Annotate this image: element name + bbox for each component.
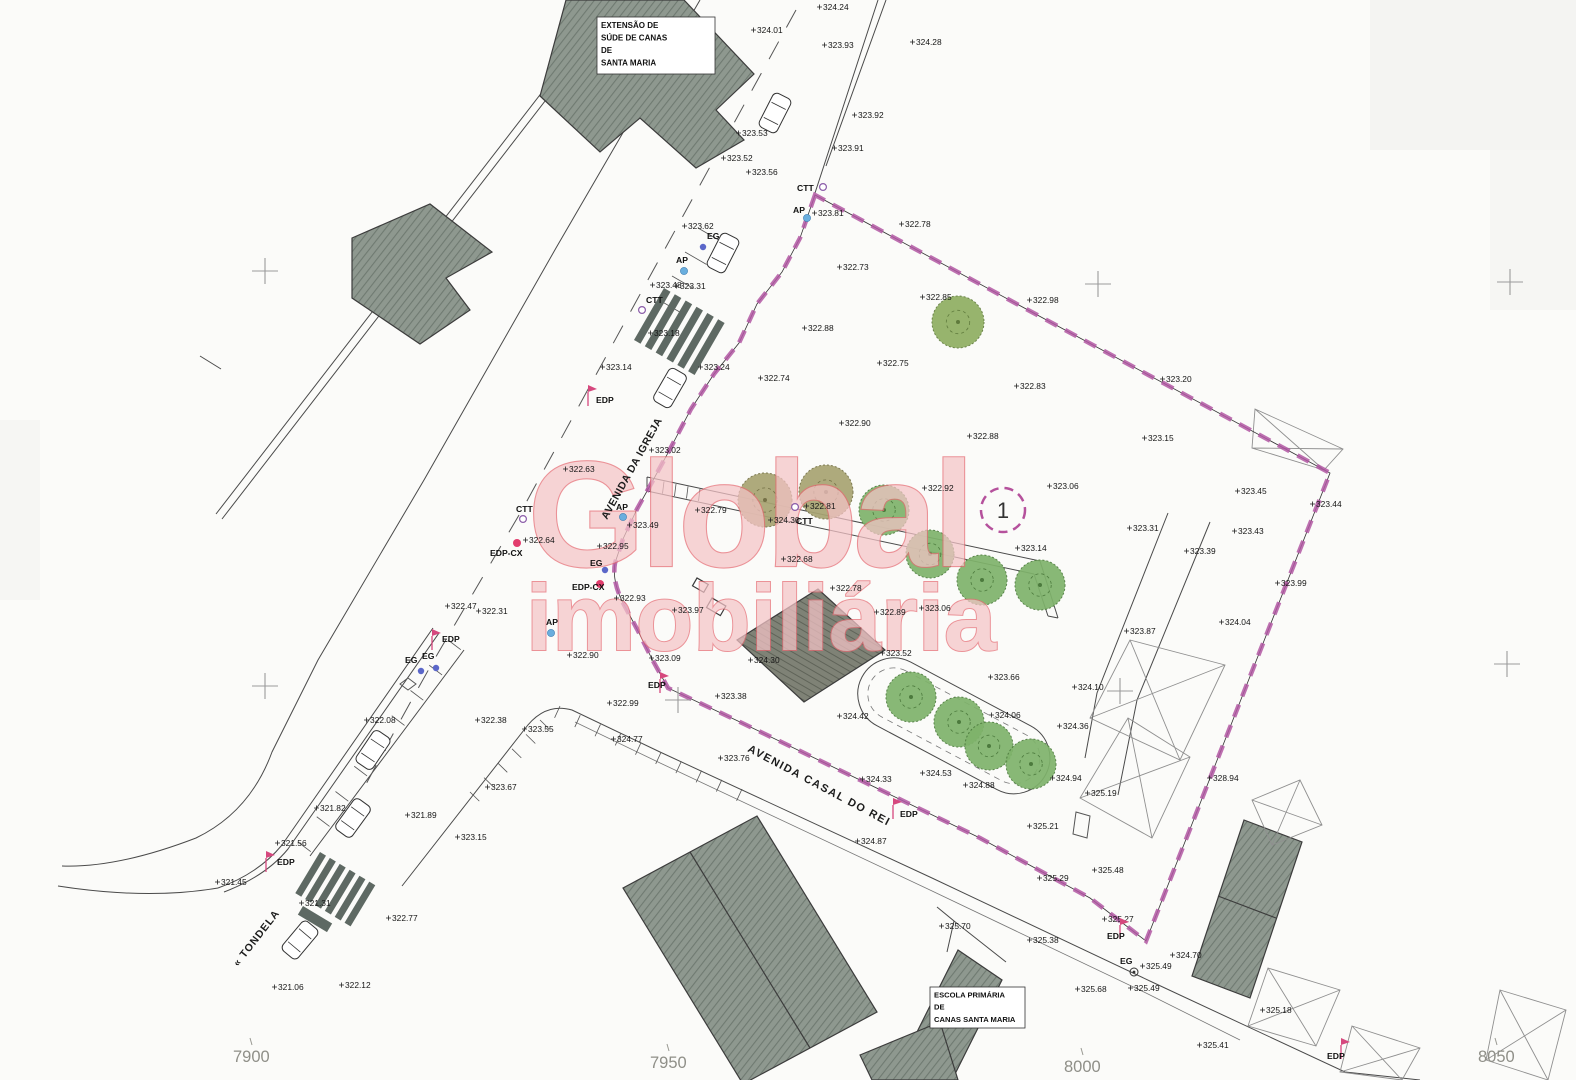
utility-label: CTT [516, 504, 533, 514]
spot-marker [920, 295, 925, 300]
street-name: « TONDELA [231, 908, 283, 969]
tree-trunk [987, 744, 991, 748]
parking-tick [685, 252, 707, 265]
tree-icon [965, 722, 1013, 770]
elevation-label: 325.48 [1098, 865, 1124, 875]
spot-marker [339, 983, 344, 988]
braced-structures [1080, 409, 1566, 1080]
spot-marker [1027, 824, 1032, 829]
elevation-label: 322.85 [926, 292, 952, 302]
utility-label: CTT [646, 295, 663, 305]
braced-frame [1340, 1026, 1420, 1080]
car-icon [280, 919, 320, 961]
building-southwest [623, 816, 877, 1080]
utility-label: CTT [796, 516, 813, 526]
spot-marker [1140, 964, 1145, 969]
spot-marker [272, 985, 277, 990]
elevation-label: 324.36 [1063, 721, 1089, 731]
grid-tick [250, 1038, 252, 1045]
parking-tick [411, 691, 424, 701]
elevation-label: 323.66 [994, 672, 1020, 682]
tree-icon [886, 672, 936, 722]
elevation-label: 325.18 [1266, 1005, 1292, 1015]
utility-label: EDP [648, 680, 666, 690]
elevation-label: 323.09 [655, 653, 681, 663]
building-east [1192, 820, 1302, 998]
eg-dot-icon [433, 665, 439, 671]
spot-marker [1310, 502, 1315, 507]
elevation-label: 322.93 [620, 593, 646, 603]
elevation-label: 324.33 [866, 774, 892, 784]
utility-label: EDP [596, 395, 614, 405]
parking-tick [498, 763, 507, 772]
spot-marker [215, 880, 220, 885]
edp-flag-icon [432, 629, 441, 636]
building-label: SÚDE DE CANAS [601, 34, 668, 43]
ctt-circle-icon [792, 504, 799, 511]
elevation-label: 324.94 [1056, 773, 1082, 783]
spot-marker [682, 224, 687, 229]
utility-edp: EDP [1327, 1038, 1350, 1061]
elevation-label: 322.68 [787, 554, 813, 564]
spot-marker [1260, 1008, 1265, 1013]
spot-marker [386, 916, 391, 921]
elevation-label: 323.14 [606, 362, 632, 372]
spot-marker [802, 326, 807, 331]
elevation-label: 322.98 [1033, 295, 1059, 305]
spot-marker [405, 813, 410, 818]
tree-icon [1006, 739, 1056, 789]
elevation-label: 325.70 [945, 921, 971, 931]
grid-coordinate: 8050 [1478, 1048, 1515, 1066]
utility-label: EDP [1327, 1051, 1345, 1061]
spot-marker [1235, 489, 1240, 494]
spot-marker [751, 28, 756, 33]
eg-dot-icon [700, 244, 706, 250]
elevation-label: 322.47 [451, 601, 477, 611]
ap-dot-icon [547, 629, 554, 636]
building-label: SANTA MARIA [601, 59, 656, 68]
car-icon [652, 367, 688, 410]
elevation-label: 323.15 [1148, 433, 1174, 443]
spot-marker [1014, 384, 1019, 389]
elevation-label: 324.87 [861, 836, 887, 846]
spot-marker [275, 841, 280, 846]
elevation-label: 324.70 [1176, 950, 1202, 960]
elevation-label: 322.78 [836, 583, 862, 593]
elevation-label: 324.30 [754, 655, 780, 665]
spot-marker [1127, 526, 1132, 531]
spot-marker [1170, 953, 1175, 958]
ctt-circle-icon [820, 184, 827, 191]
elevation-label: 322.99 [613, 698, 639, 708]
elevation-label: 325.38 [1033, 935, 1059, 945]
elevation-label: 321.89 [411, 810, 437, 820]
spot-marker [920, 771, 925, 776]
utility-edp: EDP [432, 629, 460, 650]
elevation-label: 321.31 [305, 898, 331, 908]
survey-cross-icon [252, 673, 278, 699]
building-label: EXTENSÃO DE [601, 21, 659, 30]
elevation-label: 323.52 [727, 153, 753, 163]
grid-coordinate: 8000 [1064, 1058, 1101, 1076]
utility-edp-cx: EDP-CX [490, 539, 523, 558]
elevation-label: 323.39 [1190, 546, 1216, 556]
elevation-label: 323.93 [828, 40, 854, 50]
spot-marker [1015, 546, 1020, 551]
scanned-site-plan: Global imobiliária 1 324.24324.01323.933… [0, 0, 1576, 1080]
elevation-label: 323.43 [1238, 526, 1264, 536]
spot-marker [989, 713, 994, 718]
utility-eg: EG [422, 651, 439, 671]
tree-trunk [957, 720, 961, 724]
survey-cross-icon [252, 258, 278, 284]
elevation-label: 322.12 [345, 980, 371, 990]
elevation-label: 322.88 [808, 323, 834, 333]
spot-marker [1184, 549, 1189, 554]
grid-tick [1081, 1048, 1083, 1055]
elevation-label: 323.91 [838, 143, 864, 153]
elevation-label: 322.79 [701, 505, 727, 515]
elevation-label: 325.21 [1033, 821, 1059, 831]
spot-marker [715, 694, 720, 699]
elevation-label: 323.06 [1053, 481, 1079, 491]
ap-dot-icon [619, 513, 626, 520]
elevation-label: 323.67 [491, 782, 517, 792]
spot-marker [852, 113, 857, 118]
elevation-label: 322.89 [880, 607, 906, 617]
spot-marker [476, 609, 481, 614]
spot-marker [650, 283, 655, 288]
utility-label: EDP [277, 857, 295, 867]
survey-cross-icon [1085, 271, 1111, 297]
elevation-label: 322.63 [569, 464, 595, 474]
utility-ctt: CTT [797, 183, 826, 193]
tree-trunk [1038, 583, 1042, 587]
utility-label: EDP-CX [572, 582, 605, 592]
parking-ticks [555, 706, 742, 801]
parking-tick [336, 792, 349, 802]
elevation-label: 324.06 [995, 710, 1021, 720]
edpcx-dot-icon [513, 539, 521, 547]
elevation-label: 323.20 [1166, 374, 1192, 384]
elevation-label: 323.99 [1281, 578, 1307, 588]
spot-marker [746, 170, 751, 175]
elevation-label: 325.49 [1134, 983, 1160, 993]
elevation-label: 321.45 [221, 877, 247, 887]
building-label-box: EXTENSÃO DESÚDE DE CANASDESANTA MARIA [597, 17, 715, 74]
utility-eg: EG [1120, 956, 1138, 976]
car-icon [354, 729, 392, 772]
street-name: AVENIDA CASAL DO REI [746, 743, 893, 829]
elevation-label: 323.15 [461, 832, 487, 842]
spot-marker [475, 718, 480, 723]
spot-marker [988, 675, 993, 680]
elevation-label: 323.38 [721, 691, 747, 701]
spot-marker [877, 361, 882, 366]
parking-tick [737, 789, 742, 801]
spot-marker [812, 211, 817, 216]
site-plan-map: Global imobiliária 1 324.24324.01323.933… [0, 0, 1576, 1080]
parking-outer-line [310, 650, 464, 856]
elevation-label: 323.56 [752, 167, 778, 177]
elevation-label: 322.08 [370, 715, 396, 725]
survey-cross-icon [1494, 651, 1520, 677]
elevation-label: 323.76 [724, 753, 750, 763]
elevation-label: 323.44 [1316, 499, 1342, 509]
watermark: Global imobiliária [526, 430, 997, 670]
elevation-label: 322.64 [529, 535, 555, 545]
parcel-number-text: 1 [997, 498, 1009, 523]
parcel-number: 1 [981, 488, 1025, 532]
parking-tick [526, 734, 535, 743]
spot-marker [1197, 1043, 1202, 1048]
road-left-outer-curve [58, 886, 218, 894]
elevation-label: 325.41 [1203, 1040, 1229, 1050]
elevation-label: 323.92 [858, 110, 884, 120]
spot-marker [1075, 987, 1080, 992]
elevation-label: 325.68 [1081, 984, 1107, 994]
spot-marker [822, 43, 827, 48]
elevation-label: 322.83 [1020, 381, 1046, 391]
building-label: CANAS SANTA MARIA [934, 1015, 1016, 1024]
elevation-label: 322.31 [482, 606, 508, 616]
spot-marker [1232, 529, 1237, 534]
car-body [280, 919, 320, 961]
elevation-label: 323.14 [1021, 543, 1047, 553]
elevation-label: 323.06 [925, 603, 951, 613]
parking-tick [555, 706, 560, 718]
elevation-label: 322.81 [810, 501, 836, 511]
spot-marker [1027, 298, 1032, 303]
survey-cross-icon [1107, 678, 1133, 704]
braced-frame [1080, 718, 1190, 838]
spot-marker [910, 40, 915, 45]
elevation-label: 321.82 [320, 803, 346, 813]
utility-label: EDP [900, 809, 918, 819]
elevation-label: 323.87 [1130, 626, 1156, 636]
road-diamond-mark [400, 678, 416, 690]
spot-marker [1037, 876, 1042, 881]
parking-tick [575, 715, 580, 727]
elevation-label: 323.31 [1133, 523, 1159, 533]
elevation-label: 324.10 [1078, 682, 1104, 692]
grid-tick [667, 1044, 669, 1051]
utility-label: EG [422, 651, 435, 661]
elevation-label: 323.97 [678, 605, 704, 615]
elevation-label: 321.06 [278, 982, 304, 992]
school-access [937, 907, 1006, 962]
parking-tick [595, 724, 600, 736]
misc-tick [200, 356, 221, 369]
spot-marker [721, 156, 726, 161]
spot-marker [837, 265, 842, 270]
spot-marker [839, 421, 844, 426]
building-label-box: ESCOLA PRIMÁRIADECANAS SANTA MARIA [930, 987, 1025, 1028]
braced-frame [1248, 968, 1340, 1046]
elevation-label: 323.52 [886, 648, 912, 658]
spot-marker [607, 701, 612, 706]
ap-dot-icon [803, 214, 810, 221]
parking-tick [716, 780, 721, 792]
spot-marker [1219, 620, 1224, 625]
spot-marker [485, 785, 490, 790]
ap-dot-icon [680, 267, 687, 274]
utility-ap: AP [793, 205, 811, 222]
elevation-label: 323.18 [654, 328, 680, 338]
grid-coordinate: 7900 [233, 1048, 270, 1066]
elevation-label: 322.88 [973, 431, 999, 441]
spot-marker [899, 222, 904, 227]
elevation-label: 321.56 [281, 838, 307, 848]
elevation-label: 322.75 [883, 358, 909, 368]
elevation-label: 325.49 [1146, 961, 1172, 971]
elevation-label: 324.24 [823, 2, 849, 12]
elevation-label: 325.19 [1091, 788, 1117, 798]
elevation-label: 322.95 [603, 541, 629, 551]
elevation-label: 322.90 [845, 418, 871, 428]
spot-marker [1092, 868, 1097, 873]
spot-marker [455, 835, 460, 840]
edp-flag-icon [588, 385, 597, 392]
utility-label: EG [707, 231, 720, 241]
utility-label: AP [793, 205, 805, 215]
spot-marker [1142, 436, 1147, 441]
elevation-label: 324.28 [916, 37, 942, 47]
spot-marker [939, 924, 944, 929]
spot-marker [445, 604, 450, 609]
elevation-label: 323.55 [528, 724, 554, 734]
spot-marker [611, 737, 616, 742]
tree-icon [932, 296, 984, 348]
braced-frame [1486, 990, 1566, 1080]
ctt-circle-icon [520, 516, 527, 523]
elevation-label: 323.49 [633, 520, 659, 530]
tree-icon [1015, 560, 1065, 610]
tree-trunk [909, 695, 913, 699]
parking-tick [635, 743, 640, 755]
elevation-label: 323.31 [680, 281, 706, 291]
elevation-label: 328.94 [1213, 773, 1239, 783]
spot-marker [758, 376, 763, 381]
elevation-label: 324.01 [757, 25, 783, 35]
spot-marker [963, 783, 968, 788]
parking-tick [696, 771, 701, 783]
parking-tick [512, 749, 521, 758]
grid-tick [1495, 1038, 1497, 1045]
elevation-label: 322.73 [843, 262, 869, 272]
elevation-label: 322.38 [481, 715, 507, 725]
car-body [354, 729, 392, 772]
utility-edp: EDP [588, 385, 614, 406]
utility-edp: EDP [266, 851, 295, 872]
elevation-label: 322.92 [928, 483, 954, 493]
elevation-label: 324.77 [617, 734, 643, 744]
ctt-circle-icon [639, 307, 646, 314]
utility-label: EG [590, 558, 603, 568]
utility-label: AP [676, 255, 688, 265]
building-label: DE [601, 46, 613, 55]
utility-label: EDP [442, 634, 460, 644]
gate [1073, 812, 1090, 838]
utility-label: EG [405, 655, 418, 665]
spot-marker [718, 756, 723, 761]
edp-flag-icon [660, 672, 669, 679]
spot-marker [1275, 581, 1280, 586]
car-body [652, 367, 688, 410]
road-right-curb-top [815, 0, 886, 193]
utility-label: EG [1120, 956, 1133, 966]
elevation-label: 323.02 [655, 445, 681, 455]
spot-marker [1102, 917, 1107, 922]
eg-dot-icon [602, 567, 608, 573]
building-label: DE [934, 1003, 945, 1012]
spot-marker [837, 714, 842, 719]
spot-marker [1057, 724, 1062, 729]
elevation-label: 323.45 [1241, 486, 1267, 496]
utility-label: AP [546, 617, 558, 627]
parking-tick [317, 817, 330, 827]
elevation-label: 325.29 [1043, 873, 1069, 883]
spot-marker [1047, 484, 1052, 489]
spot-marker [1124, 629, 1129, 634]
spot-marker [1072, 685, 1077, 690]
elevation-label: 324.88 [969, 780, 995, 790]
elevation-label: 323.62 [688, 221, 714, 231]
utility-label: EDP-CX [490, 548, 523, 558]
elevation-label: 323.81 [818, 208, 844, 218]
elevation-label: 322.74 [764, 373, 790, 383]
elevation-label: 323.24 [704, 362, 730, 372]
building-bottom-sliver [860, 1022, 958, 1080]
braced-frame [1090, 640, 1225, 760]
utility-edp-cx: EDP-CX [572, 580, 605, 592]
elevation-label: 322.90 [573, 650, 599, 660]
elevation-label: 322.77 [392, 913, 418, 923]
spot-marker [1160, 377, 1165, 382]
elevation-label: 323.48 [656, 280, 682, 290]
elevation-label: 324.42 [843, 711, 869, 721]
spot-marker [299, 901, 304, 906]
eg-dot-icon [418, 668, 424, 674]
sidewalk-wall-bottom [218, 628, 439, 892]
elevation-label: 324.04 [1225, 617, 1251, 627]
elevation-label: 322.78 [905, 219, 931, 229]
elevation-label: 323.53 [742, 128, 768, 138]
spot-marker [817, 5, 822, 10]
building-label: ESCOLA PRIMÁRIA [934, 991, 1006, 1000]
grid-coordinate: 7950 [650, 1054, 687, 1072]
utility-label: EDP [1107, 931, 1125, 941]
utility-ap: AP [676, 255, 688, 275]
elevation-label: 324.53 [926, 768, 952, 778]
utility-label: CTT [797, 183, 814, 193]
tree-trunk [956, 320, 960, 324]
tree-trunk [1029, 762, 1033, 766]
eg-circle-dot-icon [1133, 971, 1136, 974]
